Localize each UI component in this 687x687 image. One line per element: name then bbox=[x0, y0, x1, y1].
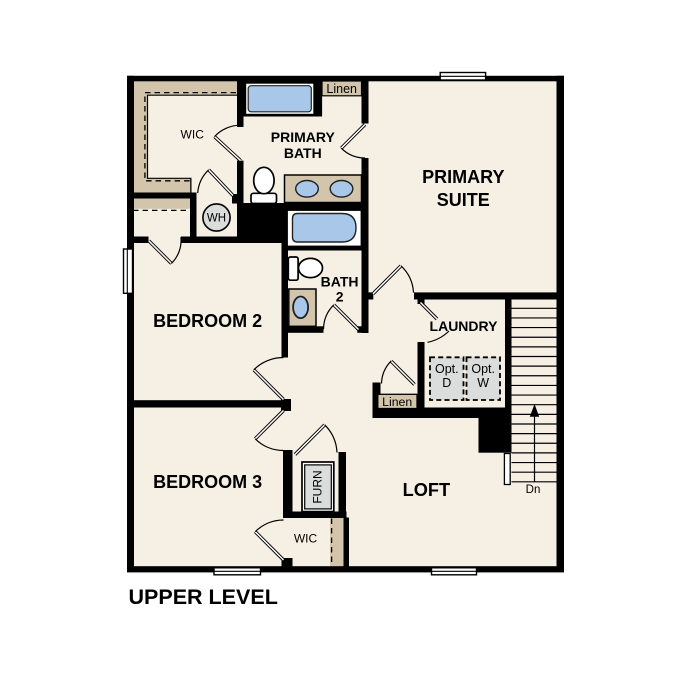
svg-text:PRIMARY: PRIMARY bbox=[422, 167, 504, 187]
svg-text:WIC: WIC bbox=[294, 532, 318, 546]
svg-text:Linen: Linen bbox=[326, 82, 357, 96]
svg-text:W: W bbox=[477, 376, 489, 390]
svg-text:Opt.: Opt. bbox=[435, 362, 459, 376]
svg-text:D: D bbox=[442, 376, 451, 390]
svg-text:WH: WH bbox=[207, 213, 226, 225]
svg-text:BATH: BATH bbox=[284, 145, 322, 161]
svg-text:BATH: BATH bbox=[321, 273, 359, 289]
svg-text:BEDROOM 3: BEDROOM 3 bbox=[153, 472, 262, 492]
svg-text:UPPER LEVEL: UPPER LEVEL bbox=[129, 585, 278, 609]
svg-text:2: 2 bbox=[336, 289, 344, 305]
svg-text:LAUNDRY: LAUNDRY bbox=[430, 318, 499, 334]
svg-text:Opt.: Opt. bbox=[471, 362, 495, 376]
svg-text:Dn: Dn bbox=[526, 484, 541, 496]
svg-text:LOFT: LOFT bbox=[403, 480, 450, 500]
svg-text:SUITE: SUITE bbox=[437, 190, 490, 210]
svg-text:WIC: WIC bbox=[181, 127, 205, 141]
svg-text:PRIMARY: PRIMARY bbox=[271, 129, 336, 145]
svg-text:Linen: Linen bbox=[382, 395, 412, 409]
svg-text:FURN: FURN bbox=[311, 470, 325, 503]
svg-text:BEDROOM 2: BEDROOM 2 bbox=[153, 311, 262, 331]
